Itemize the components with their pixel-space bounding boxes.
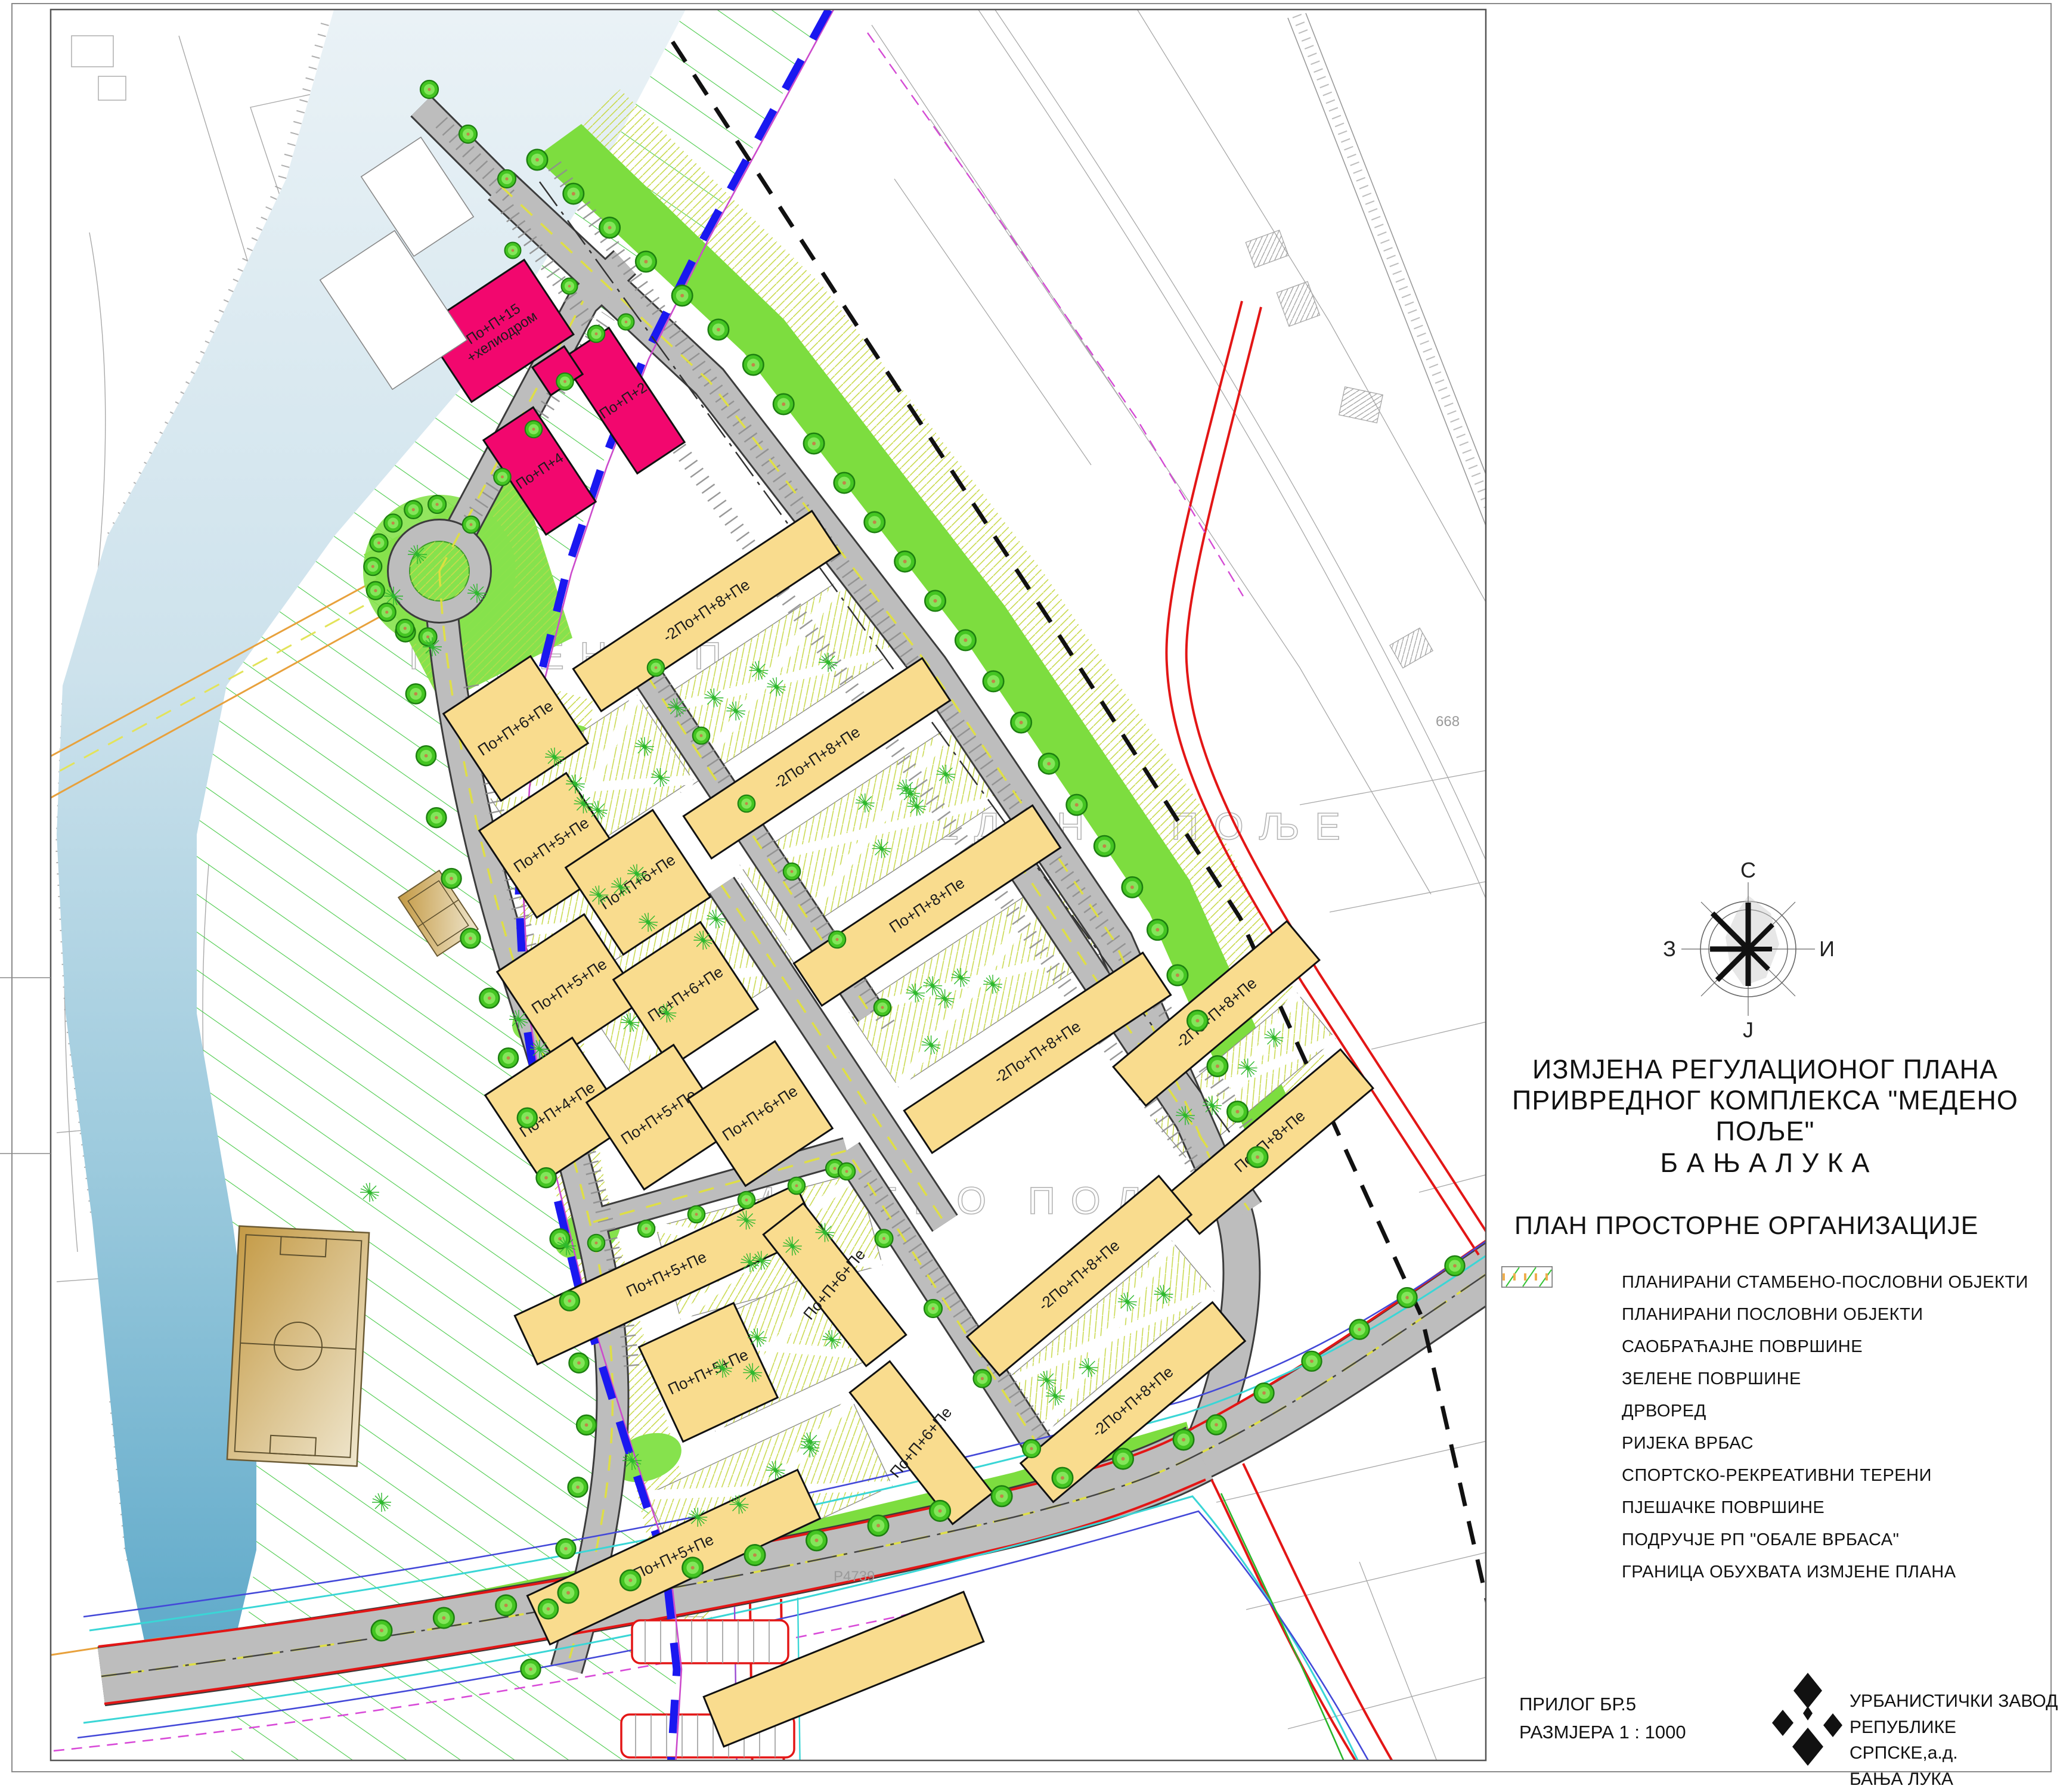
street-tree-icon	[804, 433, 825, 454]
street-tree-icon	[588, 1235, 605, 1252]
street-tree-icon	[620, 1570, 641, 1591]
street-tree-icon	[505, 243, 521, 259]
plan-sheet: МЕДЕНО ПОЉЕМЕДЕНО ПОЉЕМЕДЕНО ПОЉЕ	[0, 0, 2060, 1777]
compass-south: J	[1743, 1018, 1754, 1042]
street-tree-icon	[688, 1206, 705, 1223]
org-line-3: БАЊА ЛУКА	[1850, 1766, 2060, 1792]
street-tree-icon	[396, 619, 414, 637]
street-tree-icon	[428, 495, 446, 513]
legend-label: ЗЕЛЕНЕ ПОВРШИНЕ	[1622, 1369, 1801, 1389]
street-tree-icon	[536, 1168, 556, 1188]
map-subtitle: ПЛАН ПРОСТОРНЕ ОРГАНИЗАЦИЈЕ	[1514, 1211, 1978, 1241]
street-tree-icon	[1039, 754, 1060, 774]
street-tree-icon	[378, 603, 396, 621]
street-tree-icon	[738, 795, 755, 813]
footer-attachment-block: ПРИЛОГ БР.5 РАЗМЈЕРА 1 : 1000	[1519, 1691, 1686, 1746]
street-tree-icon	[1173, 1430, 1194, 1450]
legend-item-business[interactable]: ПЛАНИРАНИ ПОСЛОВНИ ОБЈЕКТИ	[1501, 1298, 2038, 1331]
street-tree-icon	[1247, 1147, 1268, 1168]
street-tree-icon	[1023, 1440, 1040, 1458]
street-tree-icon	[773, 394, 794, 415]
street-tree-icon	[992, 1486, 1012, 1506]
street-tree-icon	[538, 1599, 558, 1619]
street-tree-icon	[1122, 877, 1143, 898]
street-tree-icon	[498, 1048, 518, 1068]
street-tree-icon	[1113, 1449, 1133, 1469]
legend-item-traffic[interactable]: САОБРАЋАЈНЕ ПОВРШИНЕ	[1501, 1331, 2038, 1363]
parcel-number-label: 668	[1436, 714, 1460, 730]
football-field	[227, 1226, 369, 1467]
street-tree-icon	[924, 1300, 942, 1317]
street-tree-icon	[682, 1558, 703, 1579]
legend-label: ПЈЕШАЧКЕ ПОВРШИНЕ	[1622, 1498, 1824, 1518]
street-tree-icon	[459, 125, 477, 143]
legend-item-pedestrian[interactable]: ПЈЕШАЧКЕ ПОВРШИНЕ	[1501, 1492, 2038, 1524]
legend-item-trees[interactable]: ДРВОРЕД	[1501, 1395, 2038, 1427]
street-tree-icon	[364, 557, 382, 575]
street-tree-icon	[868, 1515, 889, 1536]
street-tree-icon	[1187, 1010, 1208, 1031]
street-tree-icon	[894, 551, 915, 572]
street-tree-icon	[638, 1220, 655, 1237]
legend-label: ДРВОРЕД	[1622, 1402, 1706, 1421]
street-tree-icon	[588, 325, 605, 343]
legend-item-sport[interactable]: СПОРТСКО-РЕКРЕАТИВНИ ТЕРЕНИ	[1501, 1459, 2038, 1492]
street-tree-icon	[865, 512, 885, 533]
street-tree-icon	[783, 863, 801, 881]
street-tree-icon	[974, 1370, 992, 1388]
street-tree-icon	[693, 727, 710, 745]
street-tree-icon	[1227, 1101, 1248, 1122]
legend-label: СПОРТСКО-РЕКРЕАТИВНИ ТЕРЕНИ	[1622, 1466, 1932, 1486]
street-tree-icon	[1254, 1383, 1274, 1403]
street-tree-icon	[479, 988, 499, 1008]
street-tree-icon	[367, 582, 385, 600]
street-tree-icon	[1350, 1320, 1370, 1340]
street-tree-icon	[404, 501, 422, 519]
street-tree-icon	[1398, 1288, 1417, 1307]
footer-organization: УРБАНИСТИЧКИ ЗАВОД РЕПУБЛИКЕ СРПСКЕ,а.д.…	[1850, 1688, 2060, 1792]
street-tree-icon	[618, 314, 634, 330]
street-tree-icon	[420, 80, 438, 98]
title-line-2: ПРИВРЕДНОГ КОМПЛЕКСА "МЕДЕНО ПОЉЕ"	[1495, 1085, 2035, 1147]
street-tree-icon	[1147, 919, 1168, 940]
street-tree-icon	[433, 1608, 454, 1629]
street-tree-icon	[518, 1108, 537, 1128]
boundary-swatch-icon	[1501, 1266, 1553, 1288]
legend-item-boundary[interactable]: ГРАНИЦА ОБУХВАТА ИЗМЈЕНЕ ПЛАНА	[1501, 1556, 2038, 1588]
street-tree-icon	[834, 473, 855, 494]
legend: ПЛАНИРАНИ СТАМБЕНО-ПОСЛОВНИ ОБЈЕКТИПЛАНИ…	[1501, 1266, 2038, 1588]
street-tree-icon	[1207, 1415, 1226, 1435]
legend-label: ПЛАНИРАНИ СТАМБЕНО-ПОСЛОВНИ ОБЈЕКТИ	[1622, 1273, 2028, 1292]
street-tree-icon	[1207, 1056, 1228, 1077]
street-tree-icon	[672, 286, 693, 306]
legend-item-river[interactable]: РИЈЕКА ВРБАС	[1501, 1427, 2038, 1459]
street-tree-icon	[1167, 965, 1188, 986]
street-tree-icon	[1094, 836, 1115, 857]
street-tree-icon	[406, 684, 426, 703]
street-tree-icon	[599, 218, 620, 238]
street-tree-icon	[874, 999, 891, 1016]
street-tree-icon	[983, 671, 1004, 692]
street-tree-icon	[806, 1530, 827, 1551]
street-tree-icon	[569, 1353, 588, 1373]
street-tree-icon	[636, 252, 656, 272]
street-tree-icon	[521, 1660, 541, 1679]
legend-label: РИЈЕКА ВРБАС	[1622, 1434, 1754, 1453]
compass-east: И	[1819, 937, 1835, 961]
street-tree-icon	[371, 1620, 392, 1641]
street-tree-icon	[838, 1163, 856, 1180]
street-tree-icon	[556, 373, 574, 390]
street-tree-icon	[568, 1477, 588, 1497]
street-tree-icon	[1445, 1256, 1465, 1276]
org-line-2: РЕПУБЛИКЕ СРПСКЕ,а.д.	[1850, 1715, 2060, 1766]
street-tree-icon	[1302, 1351, 1322, 1371]
street-tree-icon	[384, 514, 402, 532]
street-tree-icon	[738, 1192, 755, 1209]
street-tree-icon	[442, 869, 461, 888]
title-line-1: ИЗМЈЕНА РЕГУЛАЦИОНОГ ПЛАНА	[1495, 1054, 2035, 1085]
street-tree-icon	[419, 628, 437, 646]
title-line-3: Б А Њ А Л У К А	[1495, 1148, 2035, 1179]
legend-item-rp-area[interactable]: ПОДРУЧЈЕ РП "ОБАЛЕ ВРБАСА"	[1501, 1524, 2038, 1556]
legend-item-residential[interactable]: ПЛАНИРАНИ СТАМБЕНО-ПОСЛОВНИ ОБЈЕКТИ	[1501, 1266, 2038, 1298]
street-tree-icon	[558, 1583, 579, 1604]
street-tree-icon	[925, 591, 946, 612]
street-tree-icon	[875, 1230, 893, 1248]
parcel-number-label: Р4739	[834, 1568, 875, 1585]
street-tree-icon	[560, 1291, 580, 1311]
legend-label: ПОДРУЧЈЕ РП "ОБАЛЕ ВРБАСА"	[1622, 1530, 1899, 1550]
street-tree-icon	[460, 928, 480, 948]
street-tree-icon	[498, 170, 516, 188]
street-tree-icon	[708, 320, 729, 340]
street-tree-icon	[745, 1545, 766, 1565]
map-scale: РАЗМЈЕРА 1 : 1000	[1519, 1719, 1686, 1747]
street-tree-icon	[1011, 712, 1031, 733]
legend-label: ПЛАНИРАНИ ПОСЛОВНИ ОБЈЕКТИ	[1622, 1305, 1923, 1325]
street-tree-icon	[829, 931, 846, 948]
street-tree-icon	[562, 278, 578, 294]
street-tree-icon	[1052, 1468, 1073, 1489]
attachment-number: ПРИЛОГ БР.5	[1519, 1691, 1686, 1719]
street-tree-icon	[563, 184, 584, 204]
street-tree-icon	[416, 746, 436, 765]
legend-label: ГРАНИЦА ОБУХВАТА ИЗМЈЕНЕ ПЛАНА	[1622, 1562, 1956, 1582]
legend-item-green[interactable]: ЗЕЛЕНЕ ПОВРШИНЕ	[1501, 1363, 2038, 1395]
street-tree-icon	[743, 355, 764, 376]
street-tree-icon	[556, 1539, 575, 1558]
street-tree-icon	[955, 630, 976, 651]
map-title: ИЗМЈЕНА РЕГУЛАЦИОНОГ ПЛАНА ПРИВРЕДНОГ КО…	[1495, 1054, 2035, 1179]
street-tree-icon	[527, 150, 548, 170]
compass-north: С	[1740, 858, 1756, 882]
street-tree-icon	[370, 534, 388, 552]
street-tree-icon	[525, 421, 543, 438]
street-tree-icon	[495, 1595, 516, 1616]
compass-west: З	[1663, 937, 1676, 961]
street-tree-icon	[463, 516, 480, 534]
street-tree-icon	[494, 469, 511, 486]
street-tree-icon	[1067, 795, 1088, 816]
street-tree-icon	[648, 659, 665, 677]
org-line-1: УРБАНИСТИЧКИ ЗАВОД	[1850, 1688, 2060, 1715]
legend-label: САОБРАЋАЈНЕ ПОВРШИНЕ	[1622, 1337, 1863, 1357]
street-tree-icon	[788, 1177, 806, 1195]
street-tree-icon	[426, 808, 446, 827]
street-tree-icon	[930, 1500, 950, 1521]
street-tree-icon	[577, 1415, 596, 1435]
